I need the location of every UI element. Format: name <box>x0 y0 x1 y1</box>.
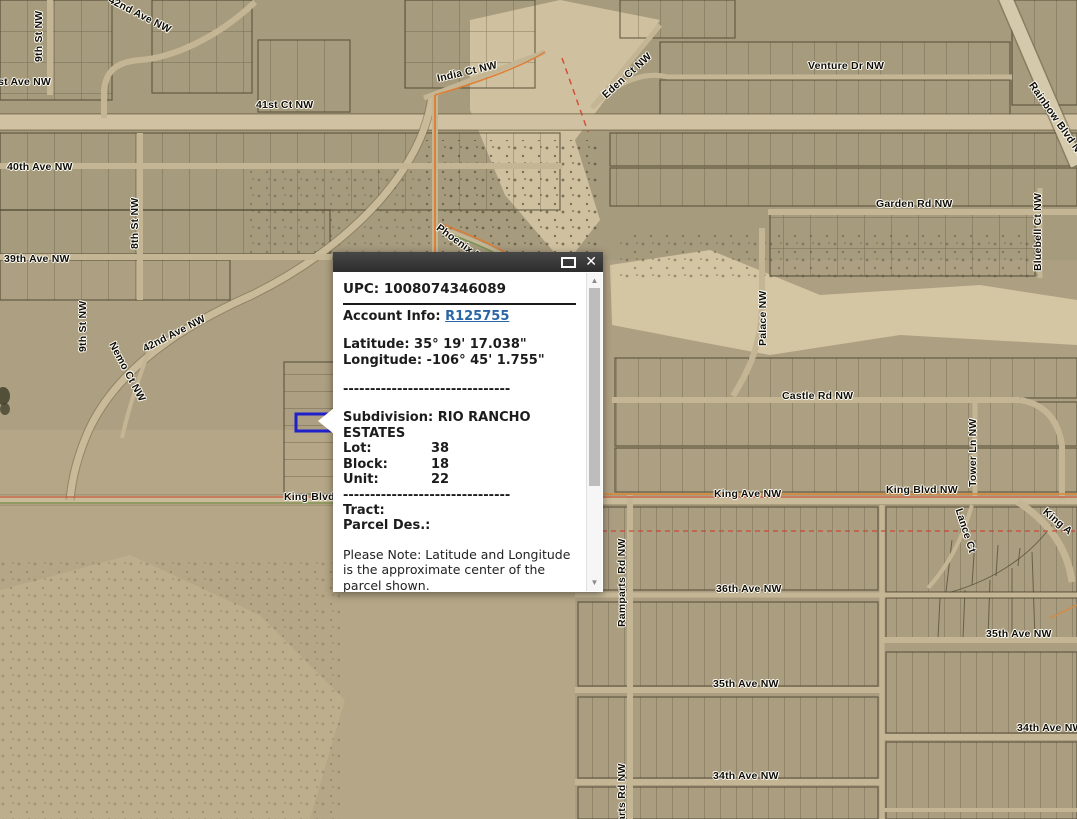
parcel-fields: Lot:38Block:18Unit:22 <box>343 441 576 488</box>
shrub-area <box>0 560 340 819</box>
popup-body: UPC: 1008074346089 Account Info: R125755… <box>333 272 603 592</box>
account-info-line: Account Info: R125755 <box>343 309 576 324</box>
parcel-info-popup: ✕ UPC: 1008074346089 Account Info: R1257… <box>333 252 603 592</box>
parcel-field-row: Unit:22 <box>343 472 576 488</box>
tract-line: Tract: <box>343 503 576 519</box>
upc-line: UPC: 1008074346089 <box>343 281 576 297</box>
close-icon[interactable]: ✕ <box>585 255 597 269</box>
note-text: Please Note: Latitude and Longitude is t… <box>343 547 576 593</box>
scroll-thumb[interactable] <box>589 288 600 486</box>
account-info-label: Account Info: <box>343 309 441 324</box>
parcel-des-line: Parcel Des.: <box>343 518 576 534</box>
popup-pointer <box>318 408 334 434</box>
popup-scrollbar[interactable]: ▲ ▼ <box>586 273 602 591</box>
tree-blob <box>0 403 10 415</box>
divider-rule <box>343 303 576 305</box>
map-viewport[interactable]: 9th St NW42nd Ave NW41st Ave NW41st Ct N… <box>0 0 1077 819</box>
parcel-field-row: Lot:38 <box>343 441 576 457</box>
parcel-field-row: Block:18 <box>343 457 576 473</box>
longitude-line: Longitude: -106° 45' 1.755" <box>343 353 576 369</box>
popup-titlebar[interactable]: ✕ <box>333 252 603 272</box>
latitude-line: Latitude: 35° 19' 17.038" <box>343 337 576 353</box>
separator-dashes: ------------------------------- <box>343 382 576 397</box>
scroll-up-arrow[interactable]: ▲ <box>587 275 602 287</box>
account-info-link[interactable]: R125755 <box>445 309 509 324</box>
subdivision-label: Subdivision: <box>343 410 433 425</box>
subdivision-line: Subdivision: RIO RANCHO ESTATES <box>343 410 576 441</box>
scroll-down-arrow[interactable]: ▼ <box>587 577 602 589</box>
separator-dashes: ------------------------------- <box>343 488 576 503</box>
maximize-icon[interactable] <box>561 257 576 268</box>
